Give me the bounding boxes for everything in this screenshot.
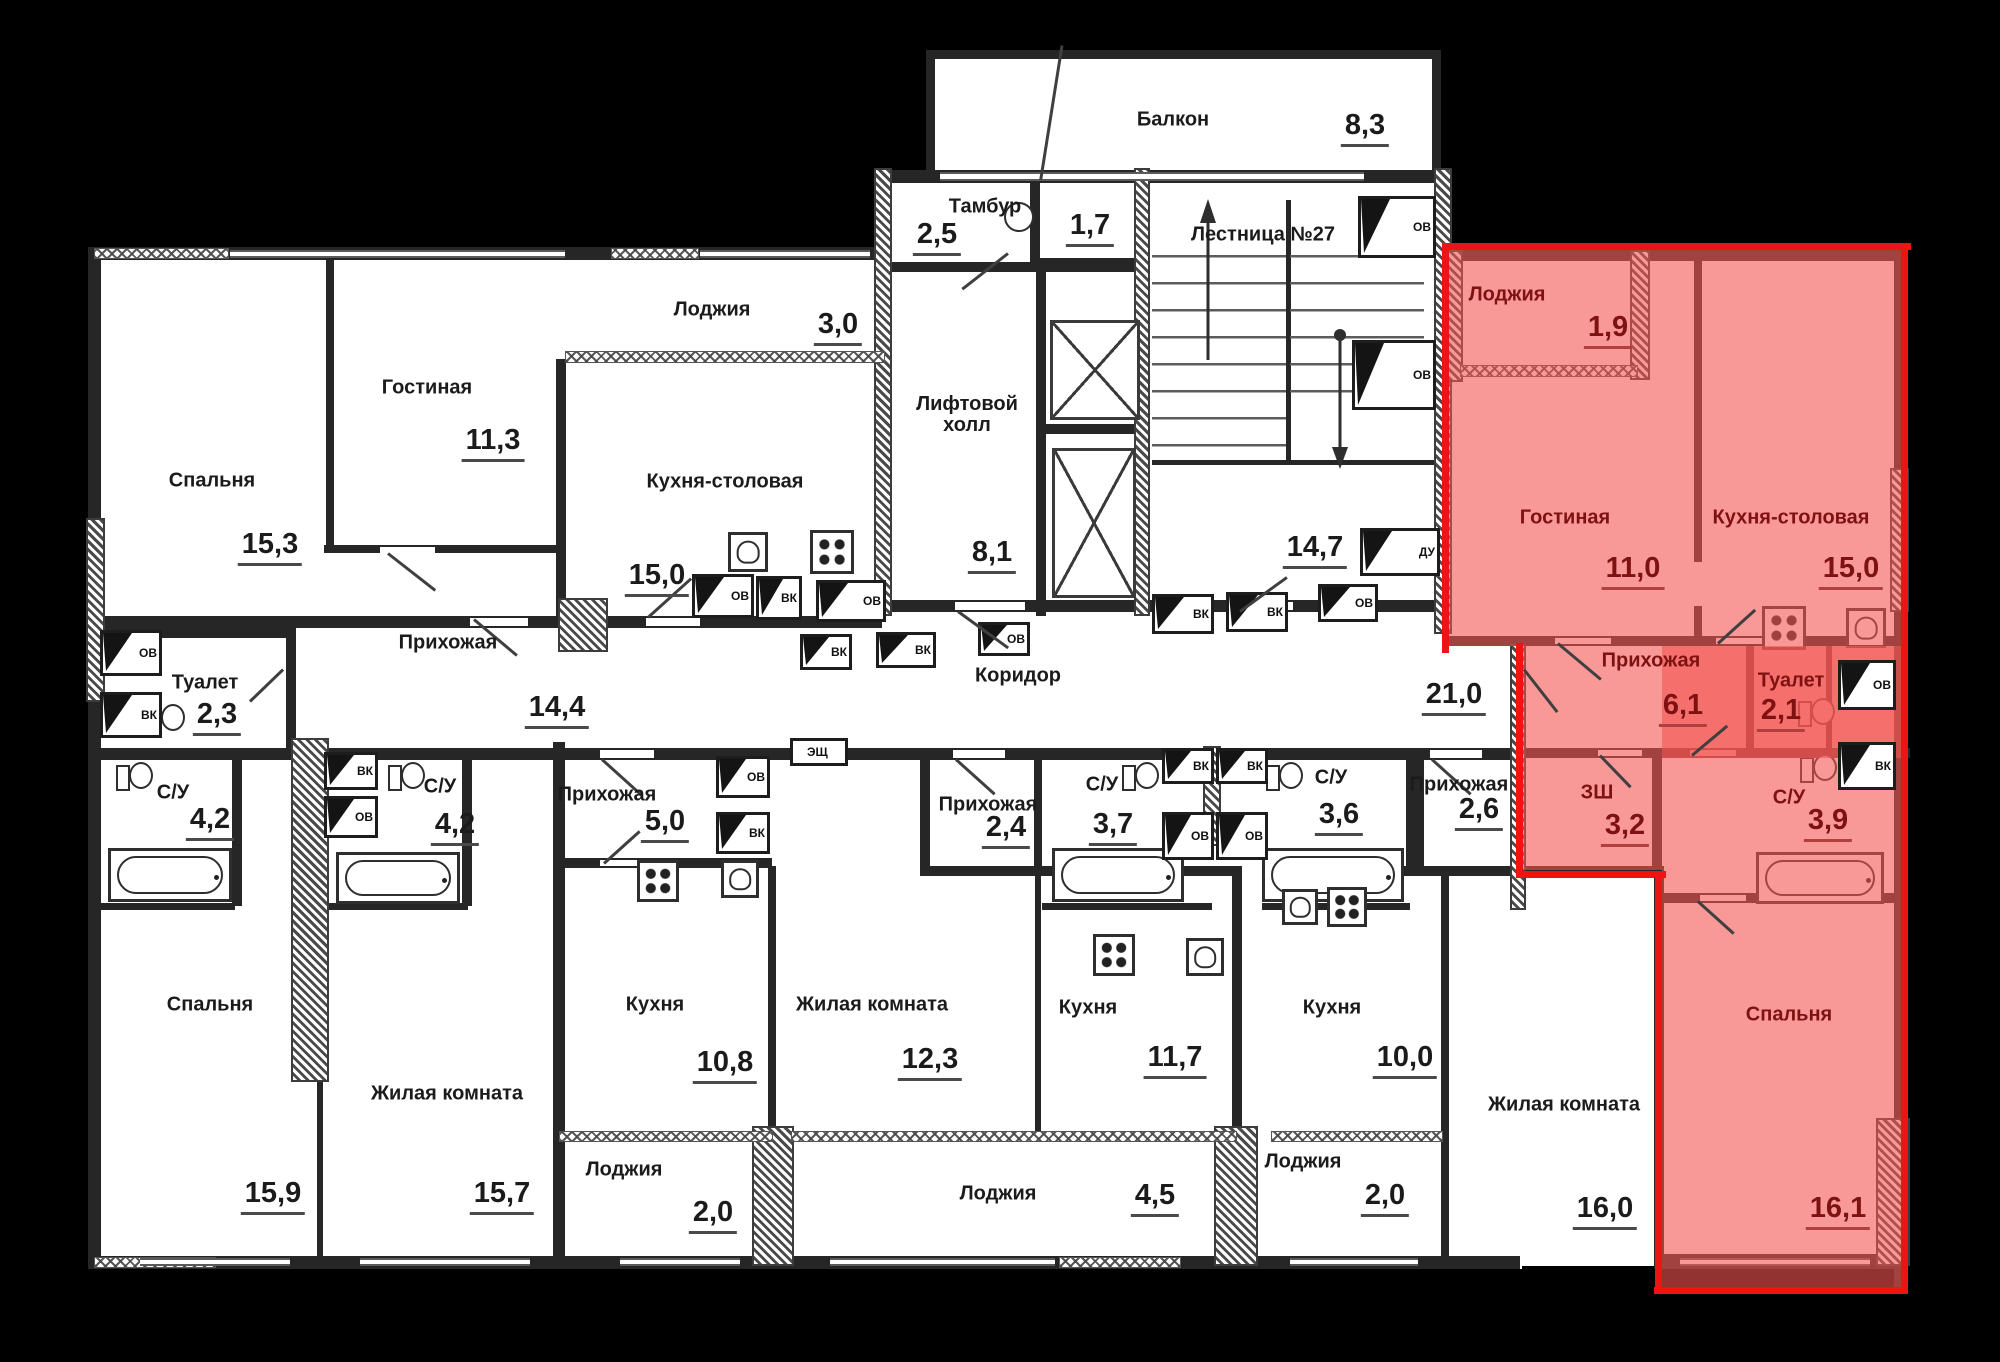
room-label-loggia-4: Лоджия <box>1265 1152 1342 1173</box>
wall <box>286 628 296 758</box>
room-area-hl-bath: 3,9 <box>1804 804 1852 842</box>
shaft-label: ОВ <box>863 594 881 608</box>
selected-apartment-outline <box>1901 243 1908 1294</box>
room-area-loggia-1: 3,0 <box>814 308 862 346</box>
shaft-label: ВК <box>141 708 157 722</box>
wall <box>308 903 468 910</box>
room-label-living-4: Жилая комната <box>1488 1095 1640 1116</box>
wall <box>326 259 334 549</box>
shaft-вк-box: ВК <box>716 812 770 854</box>
room-label-bath-2: С/У <box>424 777 456 798</box>
room-area-hl-wardrobe: 3,2 <box>1601 809 1649 847</box>
shaft-ов-box: ОВ <box>1838 660 1896 710</box>
room-label-kitchen-3: Кухня <box>1303 998 1361 1019</box>
room-label-loggia-1: Лоджия <box>674 300 751 321</box>
room-label-corridor: Коридор <box>975 666 1061 687</box>
shaft-label: ОВ <box>1873 678 1891 692</box>
wall <box>1420 866 1520 876</box>
wall-insulated <box>560 1132 772 1141</box>
shaft-вк-box: ВК <box>1216 748 1268 784</box>
wall <box>920 748 930 874</box>
wall <box>926 50 935 183</box>
stove-icon <box>1327 887 1367 927</box>
room-label-hl-kitchen-dining: Кухня-столовая <box>1713 508 1870 529</box>
room-area-bath-2: 4,2 <box>431 808 479 846</box>
floor-plan-canvas: ОВВКОВВКОВОВОВДУВКВКОВВКВКОВЭЩОВВКВКОВВК… <box>0 0 2000 1362</box>
shaft-ов-box: ОВ <box>324 796 378 838</box>
room-label-tambour: Тамбур <box>949 197 1022 218</box>
shaft-ов-box: ОВ <box>100 630 162 676</box>
selected-apartment-outline <box>1442 243 1911 250</box>
shaft-ов-box: ОВ <box>1358 196 1436 258</box>
room-label-hl-living: Гостиная <box>1520 508 1610 529</box>
window <box>620 1258 740 1266</box>
shaft-вк-box: ВК <box>1162 748 1214 784</box>
room-label-hl-bath: С/У <box>1773 788 1805 809</box>
shaft-эщ-box: ЭЩ <box>790 738 848 766</box>
room-area-living-2: 15,7 <box>470 1177 534 1215</box>
room-label-kitchen-dining-1: Кухня-столовая <box>647 472 804 493</box>
shaft-ов-box: ОВ <box>816 580 886 622</box>
room-label-living-3: Жилая комната <box>796 995 948 1016</box>
room-area-living-4: 16,0 <box>1573 1192 1637 1230</box>
room-label-staircase: Лестница №27 <box>1191 225 1335 246</box>
room-label-bath-3: С/У <box>1086 775 1118 796</box>
shaft-ов-box: ОВ <box>1162 812 1214 860</box>
shaft-label: ДУ <box>1419 545 1435 559</box>
shaft-label: ОВ <box>1355 596 1373 610</box>
wall-hatched <box>293 740 327 1080</box>
window <box>830 1258 1055 1266</box>
wall <box>926 50 1441 59</box>
selected-apartment-outline <box>1655 871 1662 1294</box>
room-label-bedroom-1: Спальня <box>169 471 255 492</box>
room-label-bath-1: С/У <box>157 783 189 804</box>
shaft-label: ОВ <box>1245 829 1263 843</box>
room-area-hl-living: 11,0 <box>1602 552 1665 590</box>
toilet-icon <box>388 762 428 790</box>
wall-insulated <box>1060 1258 1180 1267</box>
wall <box>768 866 776 1138</box>
window <box>1290 1258 1418 1266</box>
sink-icon <box>1186 938 1224 976</box>
elevator-icon <box>1050 320 1140 420</box>
shaft-вк-box: ВК <box>1838 742 1896 790</box>
room-area-hl-kitchen-dining: 15,0 <box>1819 552 1883 590</box>
bathtub-icon <box>336 852 460 904</box>
toilet-icon <box>116 762 156 790</box>
room-label-hall-1: Прихожая <box>399 633 498 654</box>
selected-apartment-highlight[interactable] <box>1662 758 1908 1294</box>
window <box>940 172 1364 181</box>
shaft-вк-box: ВК <box>1152 594 1214 634</box>
room-label-loggia-2: Лоджия <box>586 1160 663 1181</box>
shaft-ов-box: ОВ <box>1216 812 1268 860</box>
room-area-loggia-3: 4,5 <box>1131 1179 1179 1217</box>
wall <box>1232 866 1242 1134</box>
room-area-staircase: 14,7 <box>1283 531 1347 569</box>
wall <box>1432 50 1441 183</box>
sink-icon <box>1282 889 1318 925</box>
stove-icon <box>1093 934 1135 976</box>
selected-apartment-outline <box>1516 643 1523 878</box>
shaft-label: ВК <box>831 645 847 659</box>
room-area-hall-2: 5,0 <box>641 805 689 843</box>
shaft-label: ОВ <box>355 810 373 824</box>
shaft-label: ОВ <box>139 646 157 660</box>
room-area-hall-3: 2,4 <box>982 811 1030 849</box>
shaft-label: ВК <box>357 764 373 778</box>
wall <box>1036 258 1146 268</box>
room-area-living-3: 12,3 <box>898 1043 962 1081</box>
wall-hatched <box>560 600 606 650</box>
sink-icon <box>728 532 768 572</box>
shaft-label: ВК <box>1875 759 1891 773</box>
wall <box>95 903 235 910</box>
room-area-toilet-1: 2,3 <box>193 698 241 736</box>
shaft-label: ОВ <box>1007 632 1025 646</box>
room-area-kitchen-2: 11,7 <box>1144 1041 1207 1079</box>
sink-icon <box>721 860 759 898</box>
room-area-loggia-4: 2,0 <box>1361 1179 1409 1217</box>
wall-hatched <box>1216 1128 1256 1264</box>
window <box>700 250 870 258</box>
window <box>140 1258 290 1266</box>
room-label-balcony: Балкон <box>1137 110 1209 131</box>
selected-apartment-outline <box>1442 243 1449 653</box>
room-area-lift-hall: 8,1 <box>968 536 1016 574</box>
room-label-toilet-1: Туалет <box>172 673 239 694</box>
toilet-icon <box>1266 762 1306 790</box>
room-label-hl-toilet: Туалет <box>1758 671 1825 692</box>
shaft-label: ВК <box>1193 759 1209 773</box>
room-area-kitchen-3: 10,0 <box>1373 1041 1437 1079</box>
shaft-ов-box: ОВ <box>978 622 1030 656</box>
room-area-loggia-2: 2,0 <box>689 1196 737 1234</box>
room-label-bath-4: С/У <box>1315 768 1347 789</box>
wall <box>1406 748 1416 874</box>
shaft-label: ОВ <box>1413 368 1431 382</box>
room-area-bedroom-2: 15,9 <box>241 1177 305 1215</box>
door-opening <box>953 750 1005 758</box>
stove-icon <box>637 860 679 902</box>
wall <box>324 545 564 553</box>
shaft-вк-box: ВК <box>876 632 936 668</box>
door-opening <box>955 602 1025 610</box>
shaft-ов-box: ОВ <box>1352 340 1436 410</box>
room-area-hl-toilet: 2,1 <box>1757 694 1805 732</box>
room-area-hl-loggia: 1,9 <box>1584 311 1632 349</box>
room-area-hl-bedroom: 16,1 <box>1806 1192 1870 1230</box>
room-label-loggia-3: Лоджия <box>960 1184 1037 1205</box>
room-label-hl-wardrobe: ЗШ <box>1581 783 1614 804</box>
wall <box>1040 424 1142 434</box>
door-opening <box>1430 750 1482 758</box>
elevator-icon <box>1052 448 1136 598</box>
shaft-label: ОВ <box>731 589 749 603</box>
wall <box>1042 903 1212 910</box>
shaft-label: ЭЩ <box>807 745 831 759</box>
room-label-hall-2: Прихожая <box>558 785 657 806</box>
room-area-bath-1: 4,2 <box>186 803 234 841</box>
shaft-label: ВК <box>1247 759 1263 773</box>
shaft-ду-box: ДУ <box>1360 528 1440 576</box>
shaft-label: ОВ <box>1413 220 1431 234</box>
room-label-hl-hall: Прихожая <box>1602 651 1701 672</box>
room-area-balcony: 8,3 <box>1341 109 1389 147</box>
room-area-bedroom-1: 15,3 <box>238 528 302 566</box>
door-opening <box>600 750 654 758</box>
wall-insulated <box>566 352 884 362</box>
room-area-kitchen-dining-1: 15,0 <box>625 559 689 597</box>
wall <box>1036 258 1046 616</box>
shaft-label: ВК <box>1267 605 1283 619</box>
window <box>360 1258 530 1266</box>
shaft-ов-box: ОВ <box>716 756 770 798</box>
wall-insulated <box>792 1132 1236 1141</box>
shaft-label: ВК <box>915 643 931 657</box>
room-area-hall-1: 14,4 <box>525 691 589 729</box>
shaft-вк-box: ВК <box>100 692 162 738</box>
wall-hatched <box>754 1128 792 1264</box>
room-label-living-2: Жилая комната <box>371 1084 523 1105</box>
wall <box>556 359 566 619</box>
room-area-bath-3: 3,7 <box>1089 808 1137 846</box>
shaft-ов-box: ОВ <box>1318 584 1378 622</box>
wall <box>1035 866 1041 1138</box>
shaft-label: ОВ <box>747 770 765 784</box>
room-label-kitchen-1: Кухня <box>626 995 684 1016</box>
shaft-label: ВК <box>1193 607 1209 621</box>
room-area-bath-4: 3,6 <box>1315 798 1363 836</box>
room-label-bedroom-2: Спальня <box>167 995 253 1016</box>
room-label-hl-bedroom: Спальня <box>1746 1005 1832 1026</box>
window <box>230 250 565 258</box>
bathtub-icon <box>108 848 232 902</box>
shaft-label: ОВ <box>1191 829 1209 843</box>
wall-insulated <box>95 249 228 258</box>
toilet-icon <box>1122 762 1162 790</box>
wall <box>553 742 565 1264</box>
room-area-hall-4: 2,6 <box>1455 793 1503 831</box>
wall-hatched <box>876 170 890 614</box>
selected-apartment-outline <box>1654 1287 1908 1294</box>
room-area-corridor: 21,0 <box>1422 678 1486 716</box>
shaft-вк-box: ВК <box>324 752 378 790</box>
room-area-tambour: 2,5 <box>913 218 961 256</box>
selected-apartment-outline <box>1516 871 1666 878</box>
wall <box>1441 866 1449 1264</box>
room-area-hl-hall: 6,1 <box>1659 689 1707 727</box>
shaft-label: ВК <box>749 826 765 840</box>
room-area-kitchen-1: 10,8 <box>693 1046 757 1084</box>
shaft-вк-box: ВК <box>756 576 802 620</box>
room-label-living-1: Гостиная <box>382 378 472 399</box>
wall-insulated <box>1272 1132 1442 1141</box>
room-area-wc-lobby: 1,7 <box>1066 209 1114 247</box>
wall-insulated <box>612 249 698 258</box>
room-label-lift-hall: Лифтовой холл <box>892 394 1042 436</box>
shaft-ов-box: ОВ <box>692 574 754 618</box>
room-area-living-1: 11,3 <box>462 424 525 462</box>
wall <box>317 1078 323 1260</box>
door-opening <box>646 618 700 626</box>
room-label-hl-loggia: Лоджия <box>1469 285 1546 306</box>
stove-icon <box>810 530 854 574</box>
shaft-label: ВК <box>781 591 797 605</box>
shaft-вк-box: ВК <box>800 634 852 670</box>
room-label-kitchen-2: Кухня <box>1059 998 1117 1019</box>
